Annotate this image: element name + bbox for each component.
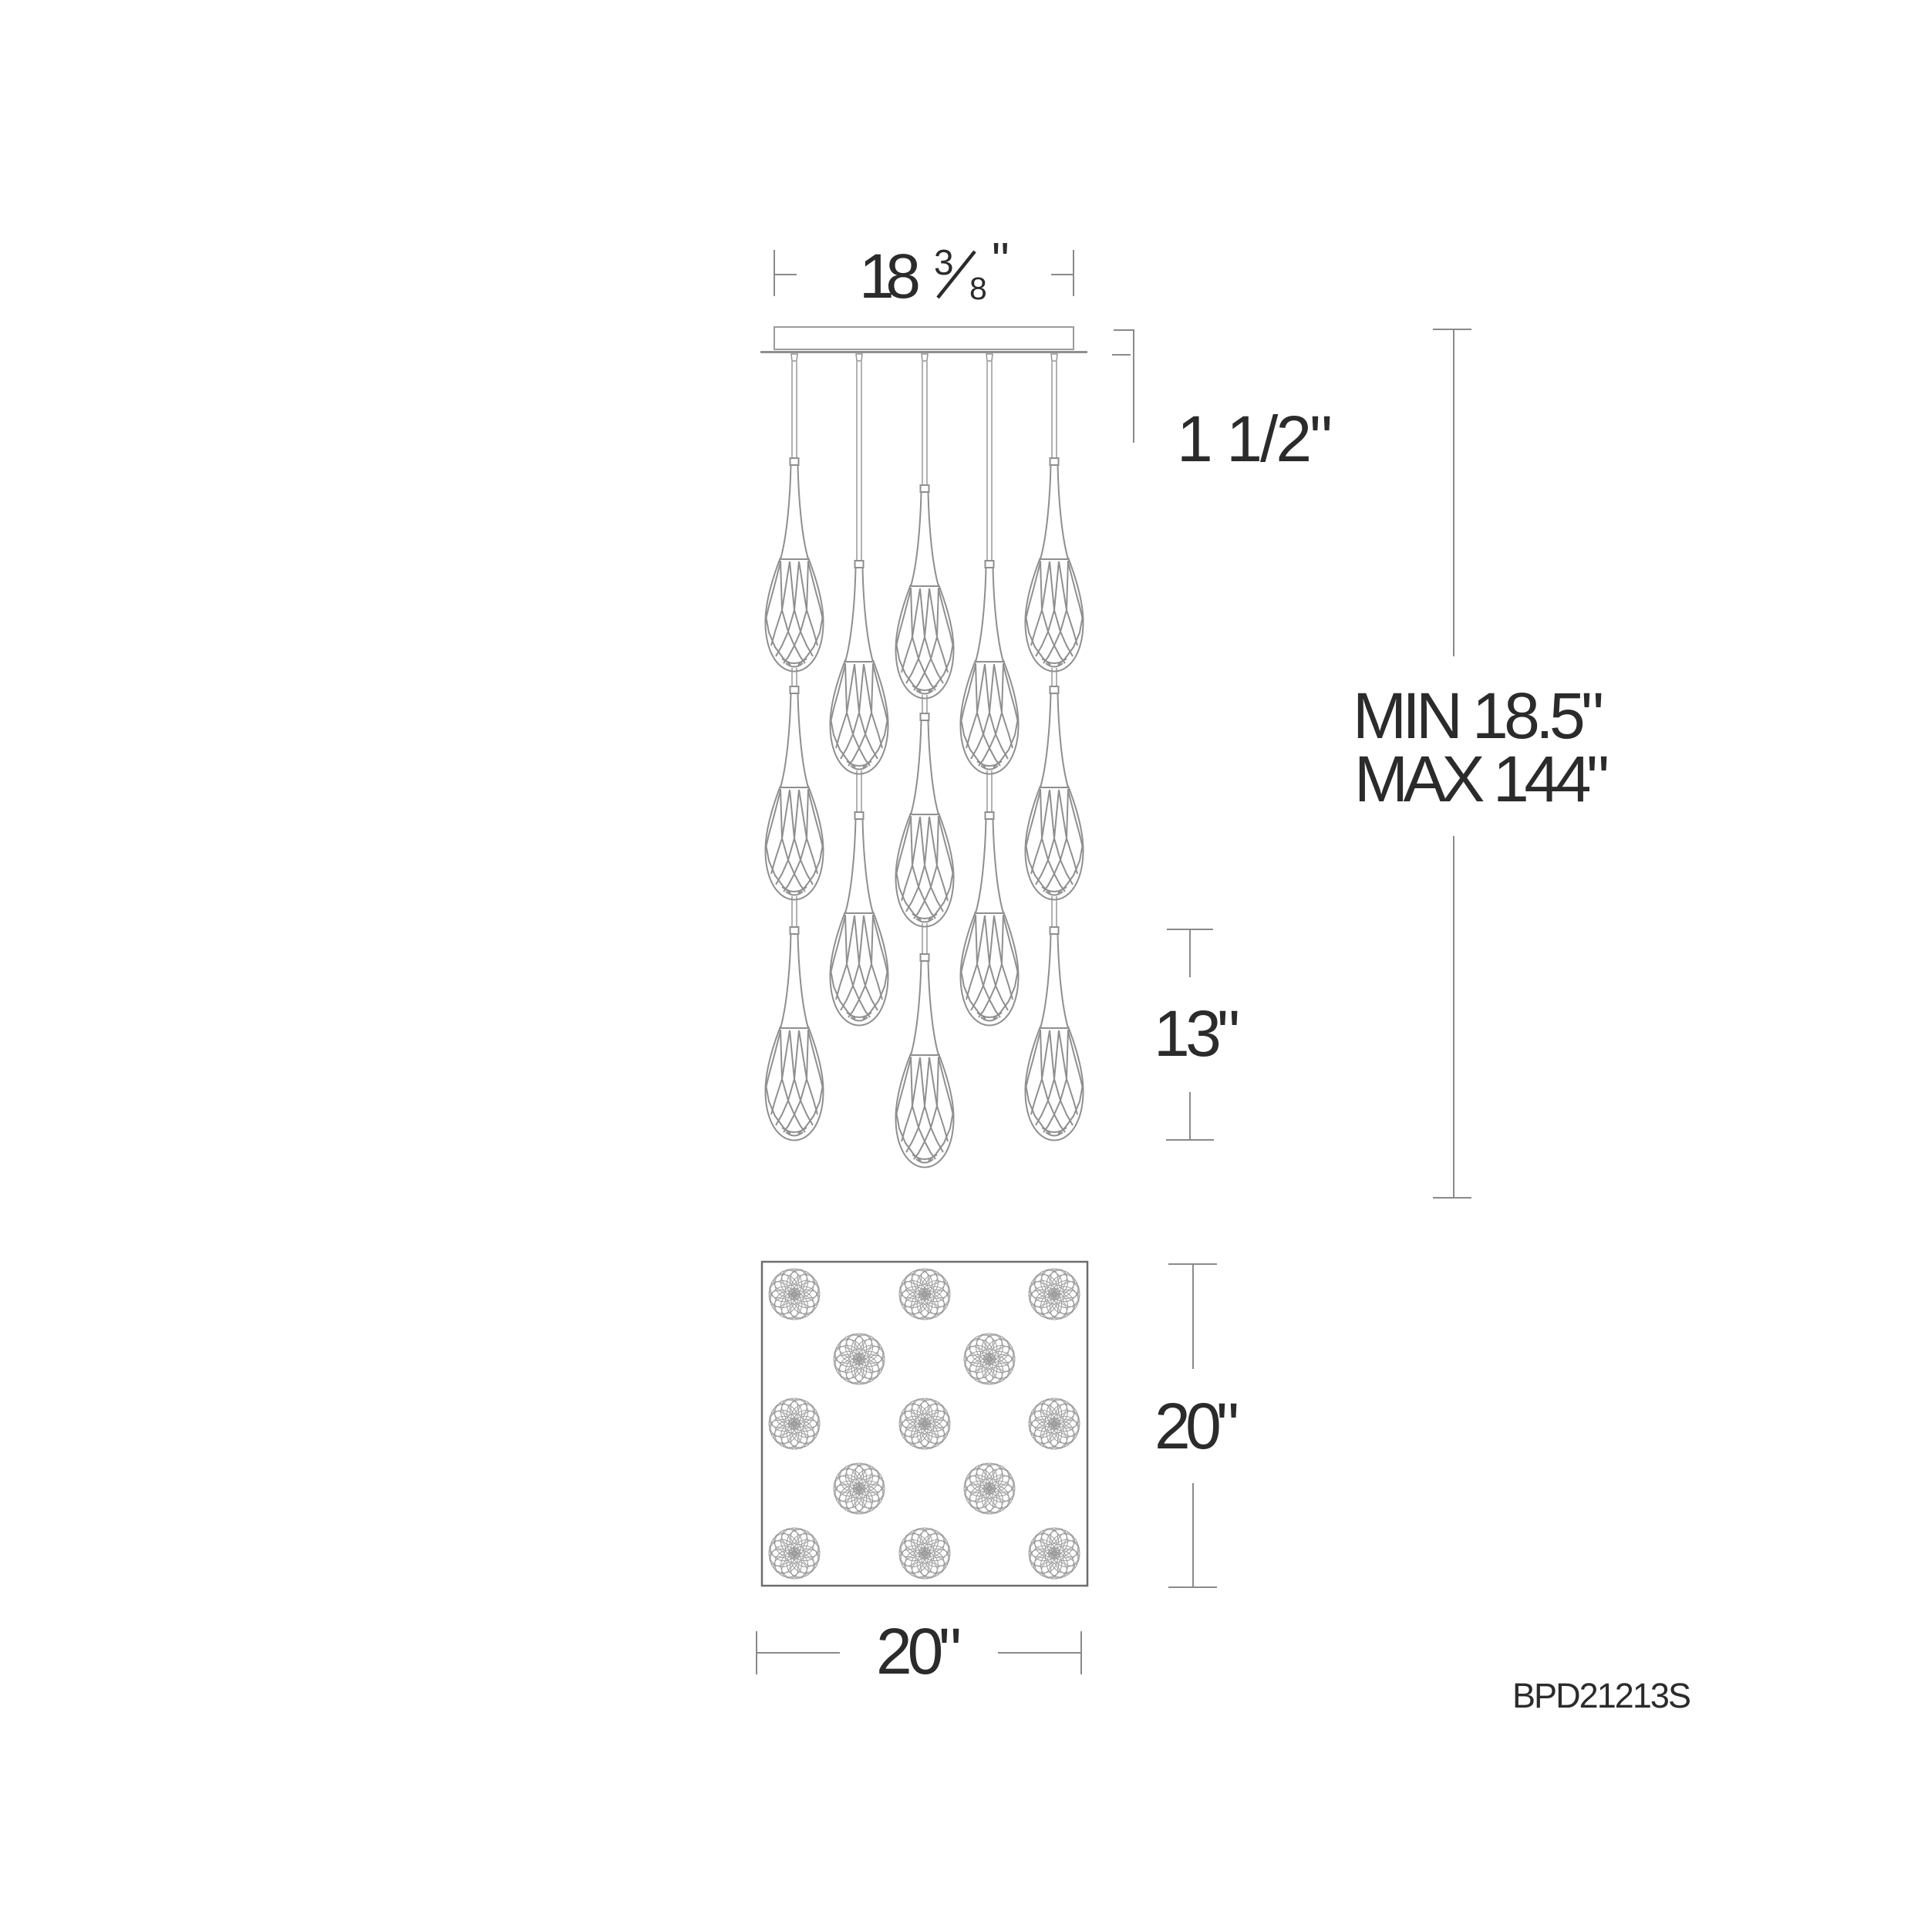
svg-text:13": 13" <box>1154 997 1240 1070</box>
svg-text:20": 20" <box>1154 1390 1239 1462</box>
svg-text:": " <box>992 232 1010 288</box>
svg-text:3: 3 <box>934 242 954 282</box>
svg-text:MAX 144": MAX 144" <box>1354 743 1609 815</box>
svg-text:MIN 18.5": MIN 18.5" <box>1353 679 1604 752</box>
svg-text:8: 8 <box>969 271 987 306</box>
svg-text:BPD21213S: BPD21213S <box>1512 1676 1691 1715</box>
svg-text:1 1/2": 1 1/2" <box>1177 403 1333 475</box>
svg-text:18: 18 <box>859 241 921 312</box>
svg-text:20": 20" <box>876 1615 962 1688</box>
